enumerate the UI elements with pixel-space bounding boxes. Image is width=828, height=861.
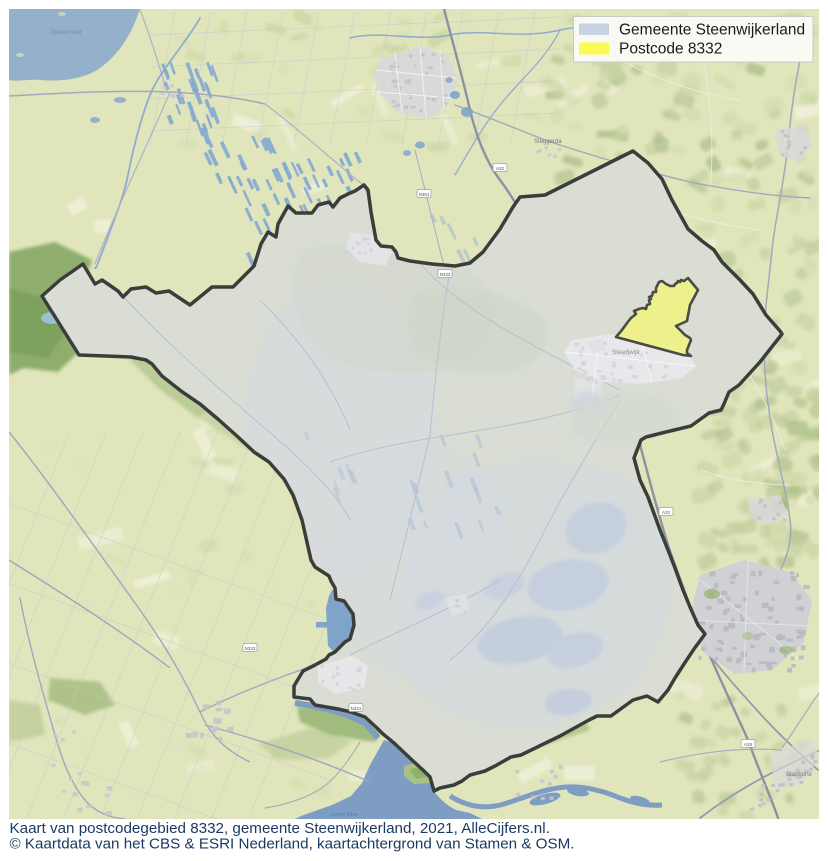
svg-text:Steenwijk: Steenwijk [612,349,641,356]
svg-text:N333: N333 [440,272,451,277]
svg-text:Kaart van postcodegebied 8332,: Kaart van postcodegebied 8332, gemeente … [10,820,550,837]
svg-text:Staphorst: Staphorst [786,772,812,778]
svg-text:N333: N333 [245,646,256,651]
svg-text:Zwarte Meer: Zwarte Meer [330,812,358,818]
svg-text:N351: N351 [419,192,430,197]
svg-text:A28: A28 [744,742,753,747]
svg-text:A32: A32 [662,510,671,515]
svg-text:Steggerda: Steggerda [534,139,562,145]
svg-text:A32: A32 [496,166,505,171]
svg-text:Postcode 8332: Postcode 8332 [619,41,722,58]
svg-text:Tjeukemeer: Tjeukemeer [50,30,82,36]
svg-text:Gemeente Steenwijkerland: Gemeente Steenwijkerland [619,22,805,39]
svg-text:N331: N331 [351,706,362,711]
svg-text:© Kaartdata van het CBS & ESRI: © Kaartdata van het CBS & ESRI Nederland… [10,836,575,853]
